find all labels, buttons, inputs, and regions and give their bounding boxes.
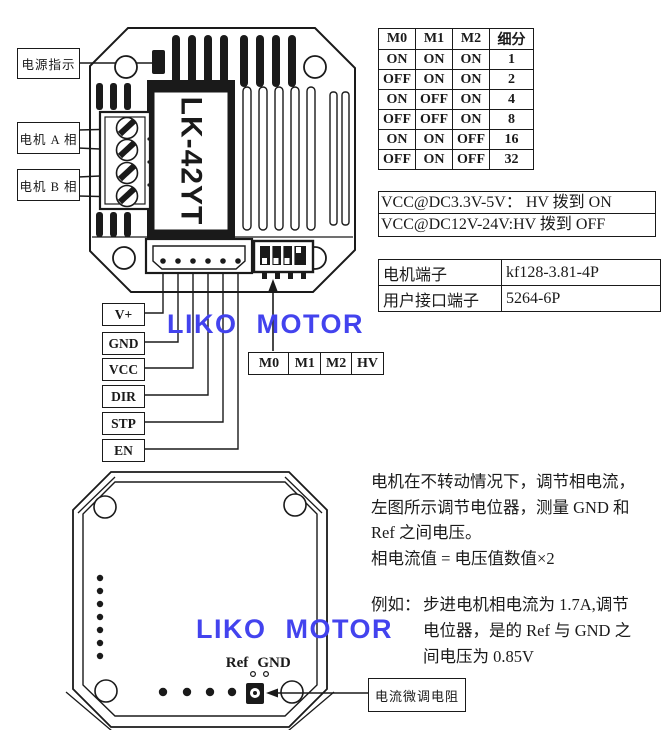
pin-label-vplus: V+ (102, 303, 145, 326)
table-row: ONOFF ON4 (379, 90, 534, 110)
dip-label-row: M0 M1 M2 HV (248, 352, 384, 375)
pin-label-gnd: GND (102, 332, 145, 355)
header-cell: M0 (379, 29, 416, 50)
table-row: OFFOFF ON8 (379, 110, 534, 130)
table-row: ONON ON1 (379, 50, 534, 70)
instruction-line: 电机在不转动情况下，调节相电流， (371, 469, 671, 495)
table-row: 用户接口端子 5264-6P (379, 286, 661, 312)
example-line: 步进电机相电流为 1.7A,调节 (423, 592, 631, 618)
connector-name: 电机端子 (379, 260, 502, 286)
instruction-line: Ref 之间电压。 (371, 520, 671, 546)
heatsink-slots-right (243, 87, 349, 230)
ref-pad-label: Ref (226, 655, 249, 671)
callout-motor-phase-a: 电机 A 相 (17, 122, 80, 154)
brand-watermark-bottom: LIKO MOTOR (196, 614, 393, 645)
header-cell: M1 (416, 29, 453, 50)
signal-connector (146, 239, 252, 273)
example-line: 间电压为 0.85V (423, 644, 631, 670)
example-line: 电位器，是的 Ref 与 GND 之 (423, 618, 631, 644)
pin-label-en: EN (102, 439, 145, 462)
brand-watermark-top: LIKO MOTOR (167, 309, 364, 340)
bottom-device-drawing: Ref GND (66, 472, 368, 730)
datasheet-page: LK-42YT (0, 0, 671, 730)
connector-name: 用户接口端子 (379, 286, 502, 312)
voltage-note-high: VCC@DC12V-24V:HV 拨到 OFF (378, 213, 656, 237)
trim-potentiometer (246, 683, 264, 704)
header-cell: M2 (453, 29, 490, 50)
pin-label-vcc: VCC (102, 358, 145, 381)
adjustment-example: 例如： 步进电机相电流为 1.7A,调节 电位器，是的 Ref 与 GND 之 … (371, 592, 631, 670)
connector-value: 5264-6P (502, 286, 661, 312)
instruction-line: 左图所示调节电位器，测量 GND 和 (371, 495, 671, 521)
adjustment-instructions: 电机在不转动情况下，调节相电流， 左图所示调节电位器，测量 GND 和 Ref … (371, 469, 671, 571)
power-led (152, 50, 165, 74)
table-header-row: M0 M1 M2 细分 (379, 29, 534, 50)
dip-label-m0: M0 (248, 352, 290, 375)
model-label: LK-42YT (175, 97, 208, 226)
gnd-pad-label: GND (257, 655, 291, 671)
callout-motor-phase-b: 电机 B 相 (17, 169, 80, 201)
terminal-block (100, 112, 151, 209)
microstep-table: M0 M1 M2 细分 ONON ON1 OFFON ON2 ONOFF ON4… (378, 28, 534, 170)
pin-label-dir: DIR (102, 385, 145, 408)
dip-label-m2: M2 (320, 352, 353, 375)
table-row: ONON OFF16 (379, 130, 534, 150)
pin-label-stp: STP (102, 412, 145, 435)
table-row: 电机端子 kf128-3.81-4P (379, 260, 661, 286)
table-row: OFFON ON2 (379, 70, 534, 90)
example-lines: 步进电机相电流为 1.7A,调节 电位器，是的 Ref 与 GND 之 间电压为… (423, 592, 631, 670)
table-row: OFFON OFF32 (379, 150, 534, 170)
voltage-notes: VCC@DC3.3V-5V： HV 拨到 ON VCC@DC12V-24V:HV… (378, 191, 656, 237)
dip-label-m1: M1 (288, 352, 321, 375)
dip-label-hv: HV (351, 352, 384, 375)
connector-value: kf128-3.81-4P (502, 260, 661, 286)
callout-power-indicator: 电源指示 (17, 48, 80, 79)
callout-current-trim-resistor: 电流微调电阻 (368, 678, 466, 712)
instruction-line: 相电流值 = 电压值数值×2 (371, 546, 671, 572)
voltage-note-low: VCC@DC3.3V-5V： HV 拨到 ON (378, 191, 656, 215)
header-cell: 细分 (490, 29, 534, 50)
connector-spec-table: 电机端子 kf128-3.81-4P 用户接口端子 5264-6P (378, 259, 661, 312)
